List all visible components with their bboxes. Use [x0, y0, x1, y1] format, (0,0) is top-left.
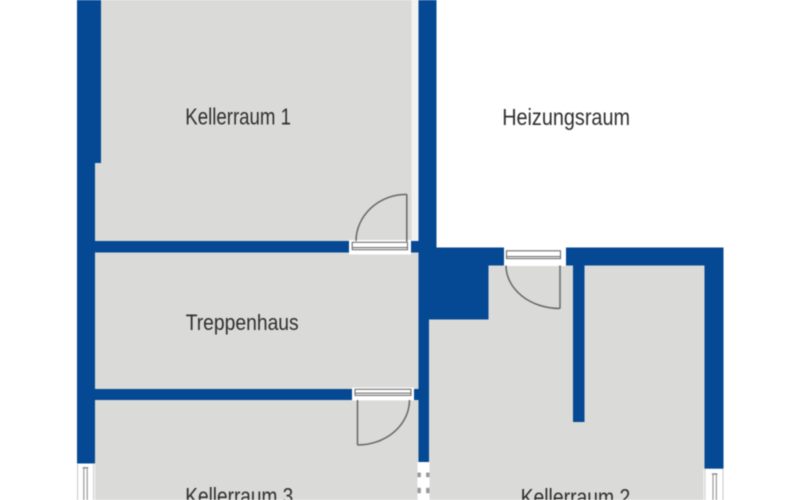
svg-text:Kellerraum 2: Kellerraum 2 [521, 484, 631, 500]
svg-text:Heizungsraum: Heizungsraum [502, 104, 630, 130]
svg-text:Kellerraum 1: Kellerraum 1 [185, 104, 291, 130]
svg-text:Kellerraum 3: Kellerraum 3 [185, 483, 293, 500]
svg-text:Treppenhaus: Treppenhaus [186, 310, 299, 335]
